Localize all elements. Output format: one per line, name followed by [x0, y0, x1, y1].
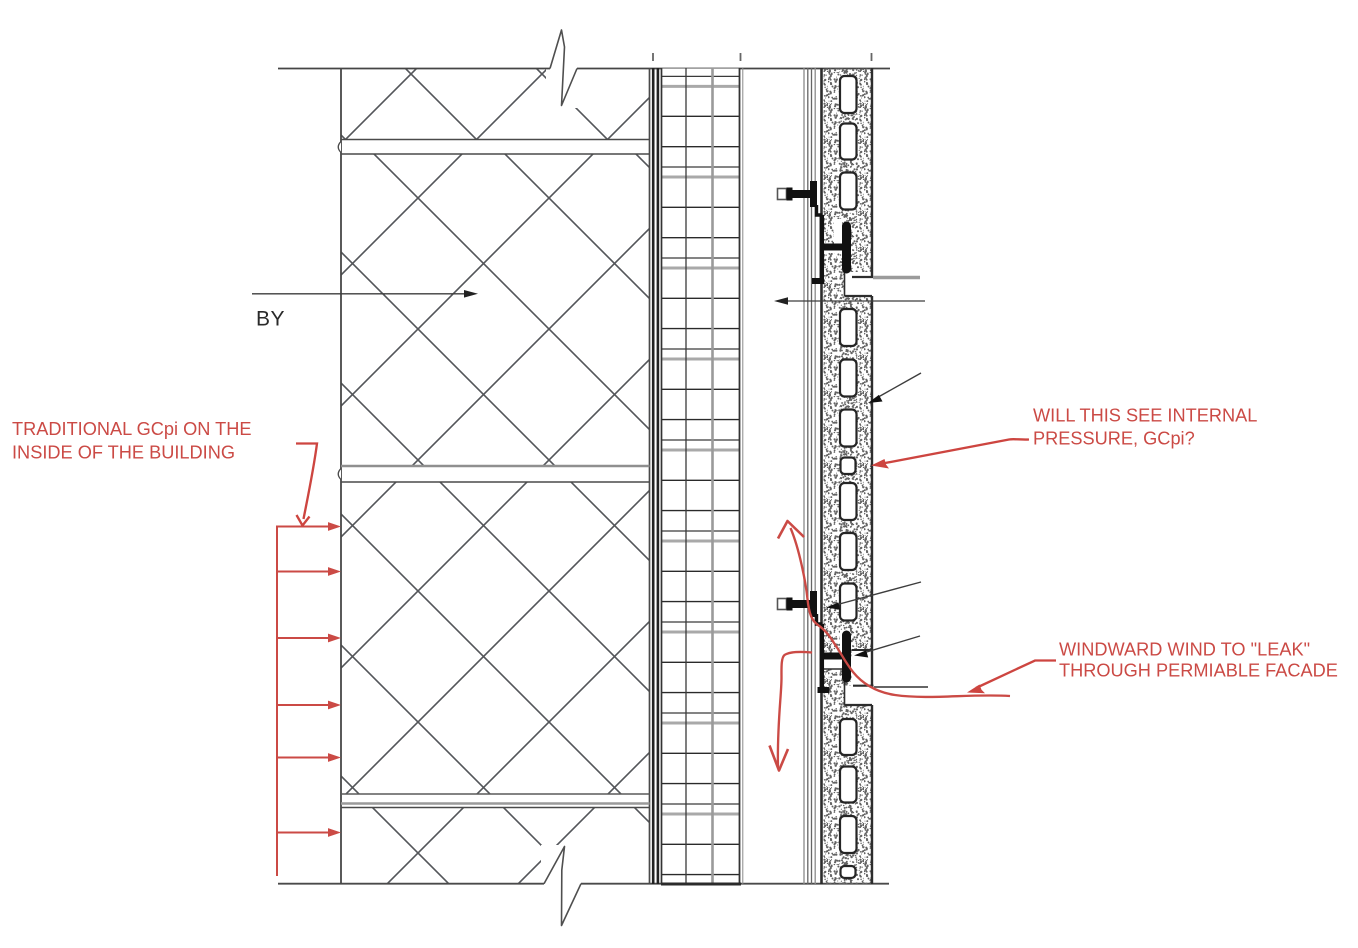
svg-text:THROUGH PERMIABLE FACADE: THROUGH PERMIABLE FACADE — [1059, 661, 1338, 681]
svg-text:WILL THIS SEE INTERNAL: WILL THIS SEE INTERNAL — [1033, 406, 1257, 426]
svg-text:TRADITIONAL GCpi ON THE: TRADITIONAL GCpi ON THE — [12, 419, 252, 439]
svg-text:PRESSURE, GCpi?: PRESSURE, GCpi? — [1033, 429, 1195, 449]
svg-text:WINDWARD WIND TO "LEAK": WINDWARD WIND TO "LEAK" — [1059, 640, 1310, 660]
svg-text:BY: BY — [256, 308, 285, 331]
svg-text:INSIDE OF THE BUILDING: INSIDE OF THE BUILDING — [12, 443, 235, 463]
